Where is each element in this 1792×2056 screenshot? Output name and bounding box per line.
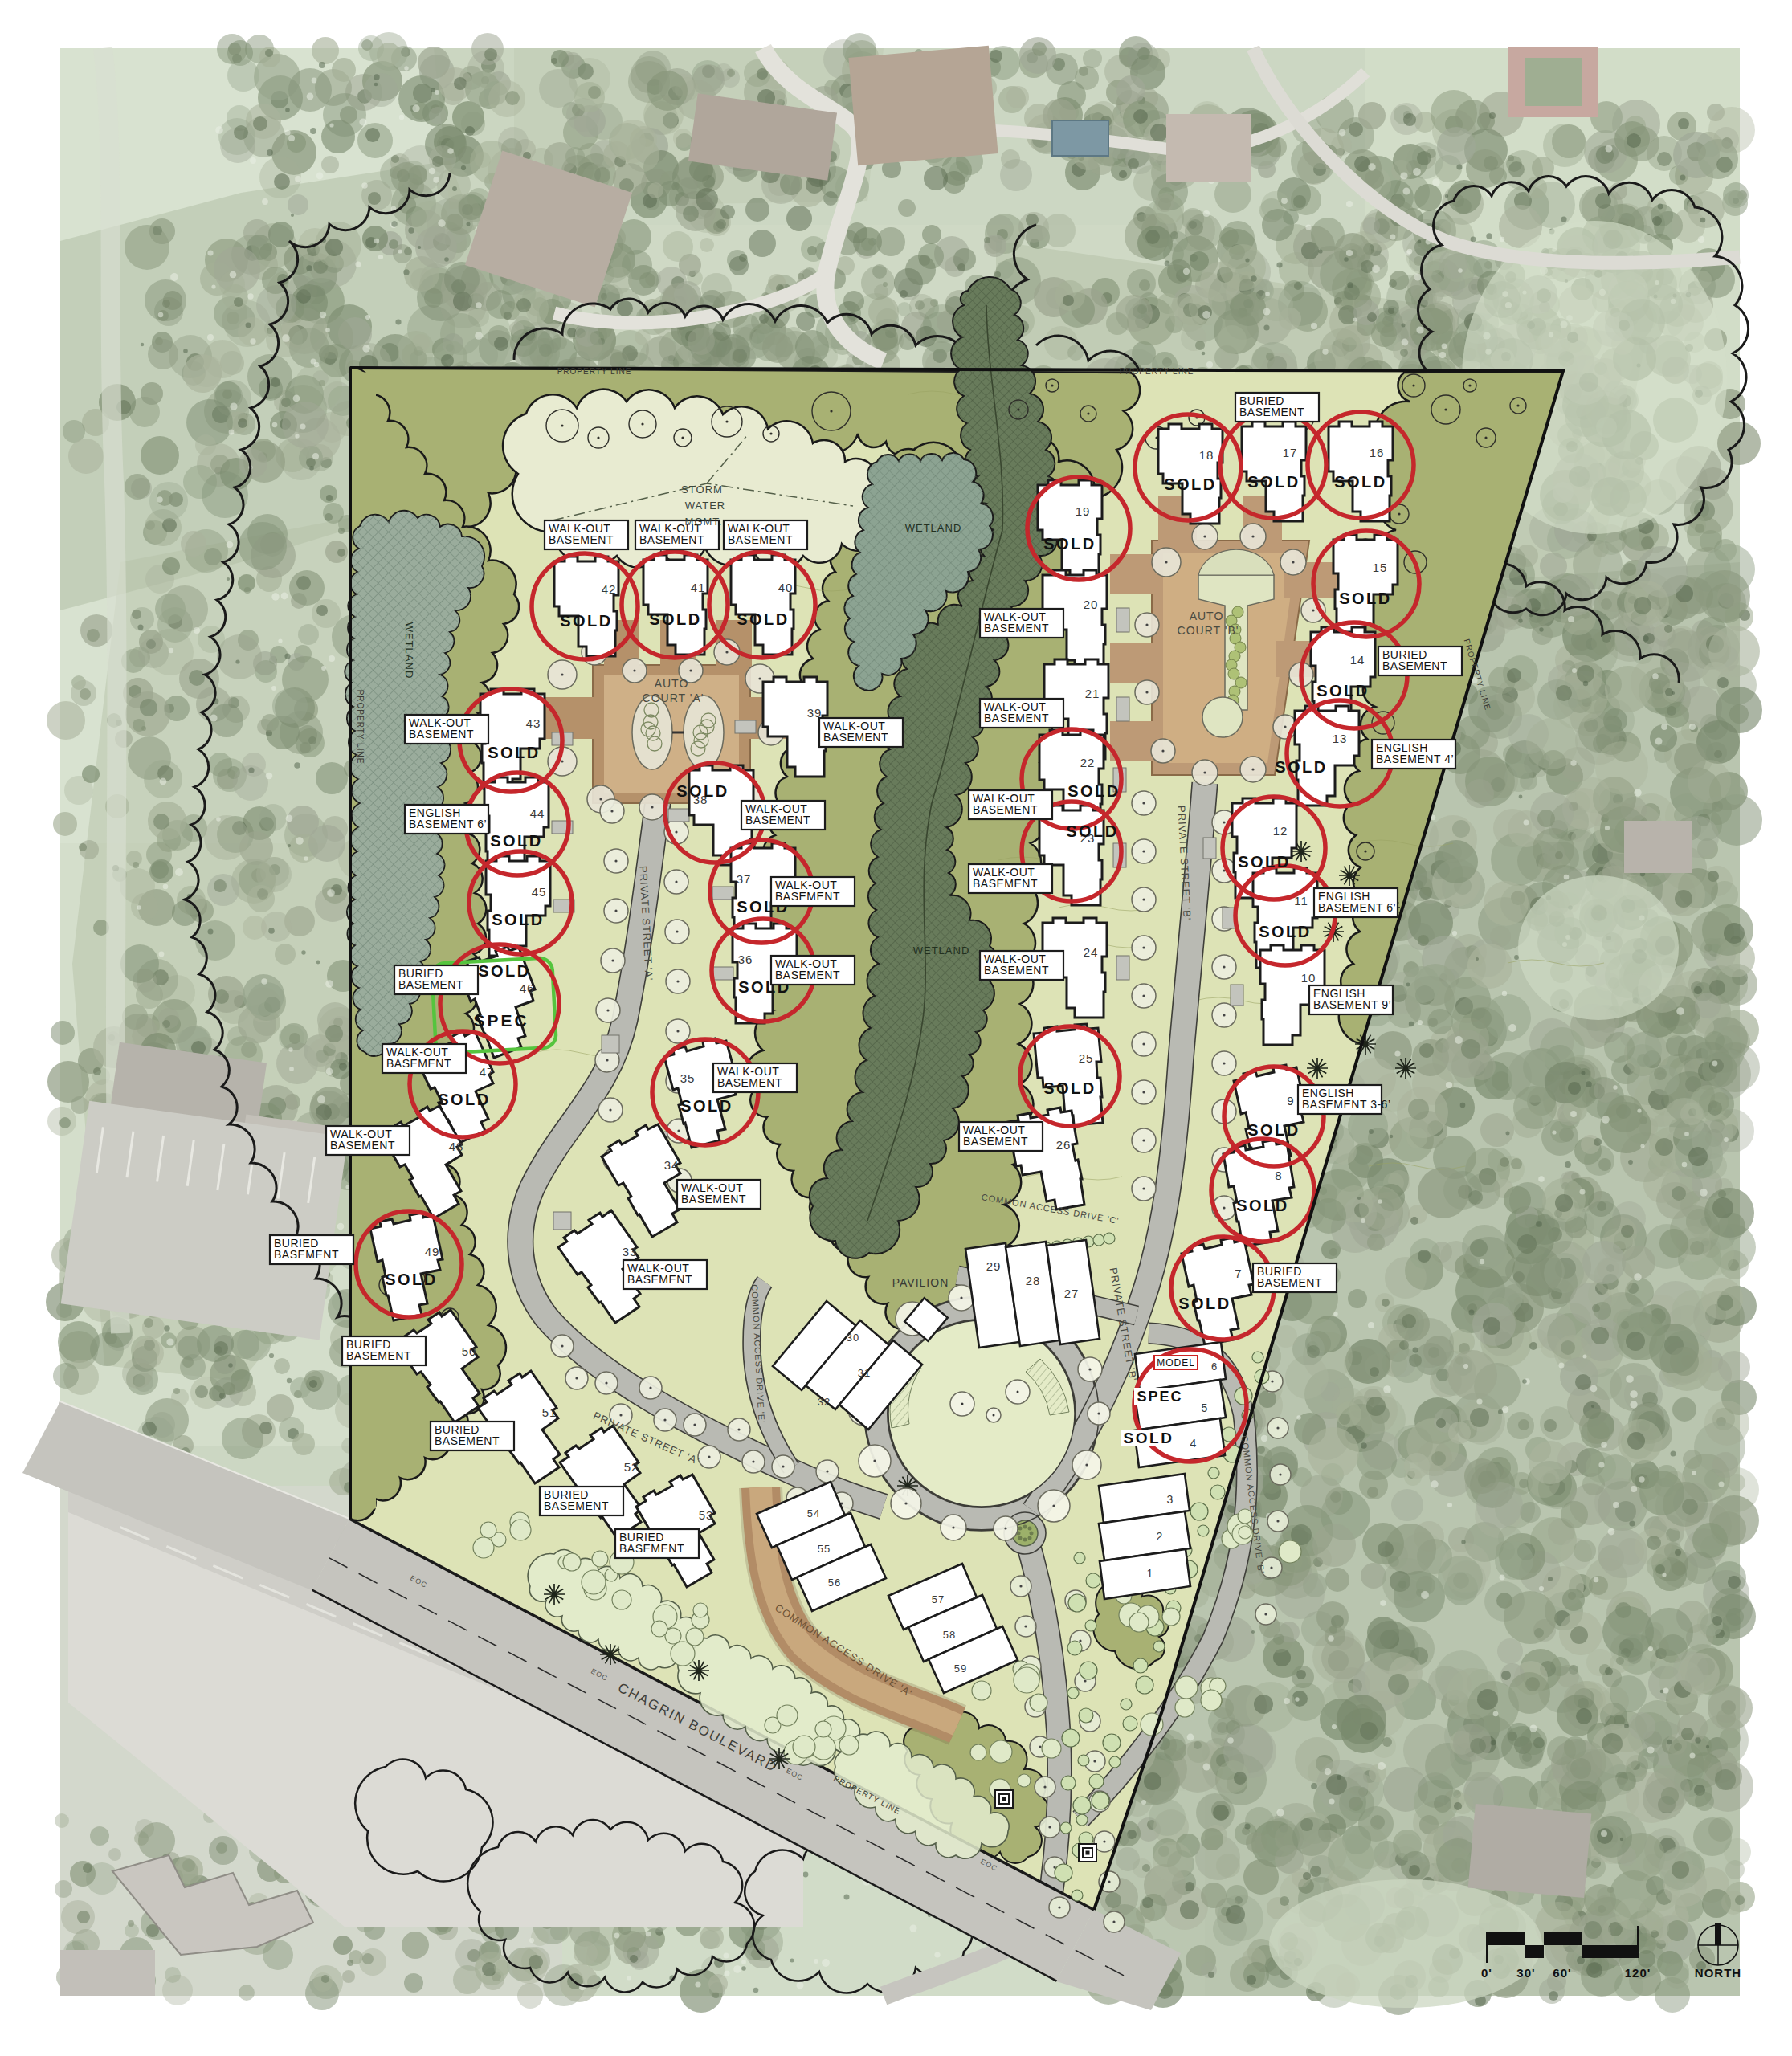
svg-text:BASEMENT: BASEMENT	[639, 533, 704, 546]
svg-text:SOLD: SOLD	[1247, 1121, 1300, 1139]
svg-text:29: 29	[986, 1259, 1002, 1273]
svg-text:SOLD: SOLD	[1339, 589, 1392, 607]
svg-text:BASEMENT 6’: BASEMENT 6’	[409, 818, 487, 830]
svg-text:PROPERTY LINE: PROPERTY LINE	[557, 367, 632, 376]
svg-text:44: 44	[530, 806, 545, 820]
svg-text:BASEMENT: BASEMENT	[984, 964, 1049, 977]
svg-text:54: 54	[807, 1507, 820, 1520]
svg-text:BASEMENT: BASEMENT	[627, 1273, 692, 1286]
svg-text:NORTH: NORTH	[1695, 1966, 1741, 1980]
svg-text:60': 60'	[1553, 1966, 1571, 1980]
svg-text:30: 30	[847, 1332, 859, 1344]
svg-text:BASEMENT: BASEMENT	[745, 814, 810, 826]
svg-text:41: 41	[691, 581, 706, 594]
svg-text:BASEMENT: BASEMENT	[984, 712, 1049, 724]
svg-text:SOLD: SOLD	[1164, 475, 1217, 493]
svg-text:35: 35	[680, 1071, 696, 1085]
svg-text:22: 22	[1080, 756, 1096, 769]
svg-text:SOLD: SOLD	[488, 744, 541, 761]
svg-text:BASEMENT: BASEMENT	[1257, 1276, 1322, 1289]
svg-text:BASEMENT: BASEMENT	[775, 890, 840, 903]
svg-text:SOLD: SOLD	[1043, 535, 1096, 553]
svg-text:58: 58	[943, 1629, 956, 1641]
svg-text:50: 50	[462, 1344, 477, 1358]
svg-text:52: 52	[624, 1460, 639, 1474]
svg-text:SOLD: SOLD	[1247, 473, 1300, 491]
svg-text:WATER: WATER	[685, 500, 726, 512]
svg-text:BASEMENT: BASEMENT	[984, 622, 1049, 634]
svg-text:BASEMENT: BASEMENT	[398, 978, 463, 991]
svg-text:SOLD: SOLD	[676, 782, 729, 800]
svg-text:27: 27	[1064, 1287, 1080, 1300]
svg-text:16: 16	[1370, 446, 1385, 459]
svg-text:45: 45	[532, 885, 547, 899]
svg-text:BASEMENT 3-6’: BASEMENT 3-6’	[1302, 1098, 1391, 1111]
svg-text:8: 8	[1275, 1169, 1282, 1182]
svg-text:56: 56	[828, 1577, 841, 1589]
svg-text:120': 120'	[1625, 1966, 1651, 1980]
svg-text:BASEMENT: BASEMENT	[619, 1542, 684, 1555]
svg-text:SOLD: SOLD	[1066, 822, 1119, 840]
svg-text:COURT 'B': COURT 'B'	[1178, 624, 1239, 637]
svg-text:42: 42	[602, 582, 617, 596]
svg-text:40: 40	[778, 581, 794, 594]
svg-text:BASEMENT: BASEMENT	[549, 533, 614, 546]
svg-text:AUTO: AUTO	[655, 677, 689, 690]
svg-text:SOLD: SOLD	[737, 610, 790, 628]
svg-text:BASEMENT: BASEMENT	[544, 1499, 609, 1512]
svg-text:15: 15	[1373, 561, 1388, 574]
svg-text:12: 12	[1273, 824, 1288, 838]
svg-text:PROPERTY LINE: PROPERTY LINE	[1120, 367, 1194, 376]
svg-text:SOLD: SOLD	[490, 832, 543, 850]
svg-text:BASEMENT: BASEMENT	[346, 1349, 411, 1362]
svg-text:5: 5	[1202, 1401, 1209, 1414]
svg-text:24: 24	[1084, 945, 1099, 959]
svg-text:SOLD: SOLD	[1067, 782, 1121, 800]
svg-text:SOLD: SOLD	[1043, 1079, 1096, 1097]
svg-text:18: 18	[1199, 448, 1214, 462]
svg-text:BASEMENT: BASEMENT	[973, 803, 1038, 816]
svg-text:7: 7	[1235, 1267, 1242, 1280]
svg-text:AUTO: AUTO	[1190, 610, 1224, 622]
svg-text:MGMT.: MGMT.	[685, 516, 723, 528]
svg-text:SOLD: SOLD	[1259, 923, 1312, 940]
svg-text:BASEMENT: BASEMENT	[973, 877, 1038, 890]
svg-text:COURT 'A': COURT 'A'	[643, 691, 704, 704]
svg-text:BASEMENT: BASEMENT	[1239, 406, 1304, 418]
svg-text:SOLD: SOLD	[1316, 682, 1370, 700]
svg-text:1: 1	[1147, 1567, 1154, 1580]
svg-text:BASEMENT: BASEMENT	[775, 969, 840, 981]
svg-text:BASEMENT: BASEMENT	[963, 1135, 1028, 1148]
svg-text:SOLD: SOLD	[1124, 1430, 1174, 1446]
svg-text:BASEMENT: BASEMENT	[435, 1434, 500, 1447]
svg-text:BASEMENT: BASEMENT	[1382, 659, 1447, 672]
svg-text:13: 13	[1333, 732, 1348, 745]
svg-text:28: 28	[1026, 1274, 1041, 1287]
svg-text:WETLAND: WETLAND	[403, 622, 415, 679]
svg-text:47: 47	[480, 1065, 495, 1079]
svg-text:33: 33	[623, 1245, 638, 1258]
svg-text:BASEMENT: BASEMENT	[409, 728, 474, 740]
svg-text:BASEMENT: BASEMENT	[728, 533, 793, 546]
svg-text:6: 6	[1211, 1360, 1218, 1373]
svg-text:SOLD: SOLD	[1238, 853, 1291, 871]
svg-text:WETLAND: WETLAND	[905, 522, 962, 534]
svg-text:3: 3	[1167, 1493, 1174, 1506]
svg-text:SOLD: SOLD	[560, 612, 613, 630]
svg-text:SOLD: SOLD	[1275, 758, 1328, 776]
svg-text:SOLD: SOLD	[649, 610, 702, 628]
svg-text:BASEMENT: BASEMENT	[823, 731, 888, 744]
svg-text:17: 17	[1283, 446, 1298, 459]
svg-text:BASEMENT: BASEMENT	[330, 1139, 395, 1152]
svg-text:SOLD: SOLD	[492, 911, 545, 928]
svg-text:25: 25	[1079, 1051, 1094, 1065]
svg-text:19: 19	[1076, 504, 1091, 518]
svg-text:BASEMENT: BASEMENT	[386, 1057, 451, 1070]
svg-text:SOLD: SOLD	[1178, 1295, 1231, 1312]
svg-text:SOLD: SOLD	[478, 962, 531, 980]
svg-text:WETLAND: WETLAND	[913, 944, 970, 957]
svg-text:21: 21	[1085, 687, 1100, 700]
svg-text:9: 9	[1287, 1094, 1294, 1108]
svg-text:37: 37	[737, 872, 752, 886]
svg-text:MODEL: MODEL	[1157, 1357, 1195, 1369]
svg-text:10: 10	[1301, 971, 1316, 985]
svg-text:BASEMENT: BASEMENT	[717, 1076, 782, 1089]
svg-text:46: 46	[520, 981, 535, 995]
svg-text:SOLD: SOLD	[385, 1271, 438, 1288]
svg-text:49: 49	[425, 1245, 440, 1258]
svg-text:BASEMENT: BASEMENT	[681, 1193, 746, 1205]
svg-text:SOLD: SOLD	[1334, 473, 1387, 491]
svg-text:PAVILION: PAVILION	[892, 1276, 949, 1289]
svg-text:PROPERTY LINE: PROPERTY LINE	[356, 690, 365, 765]
svg-text:20: 20	[1084, 598, 1099, 611]
svg-text:SOLD: SOLD	[438, 1091, 491, 1108]
svg-text:30': 30'	[1516, 1966, 1535, 1980]
svg-text:SPEC: SPEC	[473, 1011, 529, 1030]
svg-text:14: 14	[1350, 653, 1365, 667]
svg-text:26: 26	[1056, 1138, 1072, 1152]
svg-text:2: 2	[1157, 1530, 1164, 1543]
svg-text:BASEMENT 6’: BASEMENT 6’	[1318, 901, 1396, 914]
svg-text:32: 32	[818, 1396, 831, 1408]
svg-text:53: 53	[699, 1508, 714, 1522]
svg-text:59: 59	[954, 1662, 967, 1675]
svg-text:BASEMENT: BASEMENT	[274, 1248, 339, 1261]
svg-text:34: 34	[664, 1158, 680, 1172]
svg-text:0': 0'	[1481, 1966, 1492, 1980]
svg-text:55: 55	[818, 1543, 831, 1555]
svg-text:BASEMENT 4’: BASEMENT 4’	[1376, 753, 1454, 765]
svg-text:48: 48	[449, 1140, 464, 1153]
svg-text:SOLD: SOLD	[1236, 1197, 1289, 1214]
svg-text:BASEMENT 9’: BASEMENT 9’	[1313, 998, 1391, 1011]
svg-text:SOLD: SOLD	[680, 1097, 733, 1115]
svg-text:4: 4	[1190, 1437, 1198, 1450]
svg-text:31: 31	[858, 1367, 871, 1379]
svg-text:57: 57	[932, 1593, 945, 1605]
svg-text:36: 36	[738, 953, 753, 966]
svg-text:43: 43	[526, 716, 541, 730]
svg-text:SPEC: SPEC	[1137, 1389, 1182, 1405]
svg-text:51: 51	[542, 1405, 557, 1419]
svg-text:STORM: STORM	[681, 483, 723, 496]
